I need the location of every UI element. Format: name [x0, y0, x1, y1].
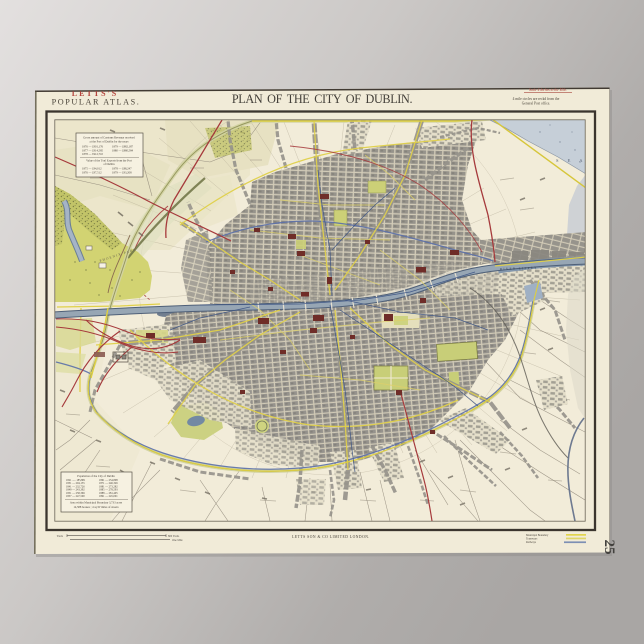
svg-text:One Mile: One Mile: [172, 539, 183, 542]
svg-text:25: 25: [601, 540, 617, 555]
svg-text:1891 — 245,001: 1891 — 245,001: [99, 495, 118, 498]
svg-text:General Post office.: General Post office.: [522, 102, 551, 106]
svg-text:1880 — £880,584: 1880 — £880,584: [112, 148, 134, 152]
svg-text:1876 — £97,512: 1876 — £97,512: [82, 170, 102, 174]
svg-text:PLAN OF THE CITY OF DUBLIN.: PLAN OF THE CITY OF DUBLIN.: [232, 92, 413, 106]
svg-text:Municipal Boundary: Municipal Boundary: [526, 534, 549, 537]
svg-text:Railways: Railways: [526, 541, 536, 544]
svg-text:of Dublin: of Dublin: [103, 162, 115, 166]
svg-text:Area within Municipal Boundary: Area within Municipal Boundary 3,733 acr…: [70, 501, 123, 505]
svg-text:LETTS SON & CO LIMITED LONDON.: LETTS SON & CO LIMITED LONDON.: [292, 535, 370, 539]
svg-text:4 mile circles are reckd from: 4 mile circles are reckd from the: [513, 97, 560, 101]
svg-text:at the Port of Dublin for the: at the Port of Dublin for the years: [90, 139, 130, 143]
svg-text:Tramways: Tramways: [526, 538, 537, 541]
svg-text:POPULAR ATLAS.: POPULAR ATLAS.: [52, 98, 141, 107]
svg-text:1857 — 247,500: 1857 — 247,500: [66, 495, 85, 498]
svg-text:Scale 4 Inches to the Mile.: Scale 4 Inches to the Mile.: [529, 88, 567, 92]
svg-text:14,588 houses ; 4 sq/W miles o: 14,588 houses ; 4 sq/W miles of streets: [73, 505, 119, 509]
svg-text:S E A: S E A: [556, 158, 587, 163]
svg-text:1879 — £93,208: 1879 — £93,208: [112, 170, 132, 174]
svg-text:800 Yards: 800 Yards: [168, 535, 179, 538]
svg-text:Population of the City of Dubl: Population of the City of Dublin: [77, 474, 115, 478]
svg-text:Yards: Yards: [57, 535, 63, 538]
svg-text:1878 — £912,710: 1878 — £912,710: [82, 152, 104, 156]
